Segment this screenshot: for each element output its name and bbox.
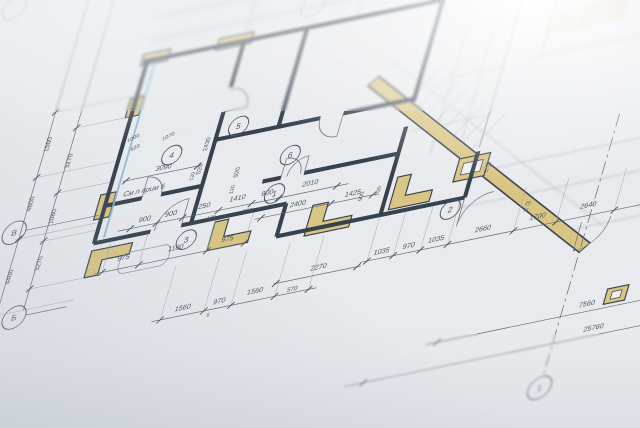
dimension-label: 520 xyxy=(195,163,205,175)
dimension-label: 1070 xyxy=(162,131,175,142)
dimension-label: 900 xyxy=(164,208,179,219)
dimension-label: 6 xyxy=(206,312,211,318)
dimension-label: 2400 xyxy=(289,198,308,210)
dimension-label: 905 xyxy=(242,208,254,216)
dimension-label: 120 xyxy=(205,215,216,223)
dimension-label: 120 xyxy=(229,184,237,194)
dimension-label: 2010 xyxy=(301,177,320,189)
axis-marker-circle xyxy=(0,0,29,22)
room-number: 4 xyxy=(168,150,176,161)
axis-marker-label: В xyxy=(10,227,19,238)
dimension-label: 900 xyxy=(138,213,153,224)
room-number: 5 xyxy=(235,121,243,132)
dimension-label: 4800 xyxy=(26,196,37,212)
axis-marker-label: Б xyxy=(10,312,19,323)
dimension-label: 1560 xyxy=(174,302,193,314)
dimension-label: 4400 xyxy=(4,269,15,285)
dimension-label: 570 xyxy=(286,285,299,294)
faint-top-right-plan xyxy=(526,0,640,59)
axis-centerline xyxy=(544,113,620,374)
dimension-label: 920 xyxy=(232,166,242,178)
dimension-label: 1080 xyxy=(47,208,58,224)
dimension-label: 970 xyxy=(401,240,416,251)
highlighted-columns xyxy=(35,0,640,422)
utility-line-blue xyxy=(104,65,154,238)
dimension-label: 1035 xyxy=(372,245,391,257)
floor-plan-drawing: См п прим 6 9009001250120141090590020102… xyxy=(0,0,640,428)
dimension-label: 3270 xyxy=(34,255,45,271)
dimension-label: 7560 xyxy=(578,298,597,310)
dimension-label: 975 xyxy=(116,252,131,263)
dimension-label: 700 xyxy=(375,185,384,196)
dimension-label: 2640 xyxy=(579,199,598,211)
axis-marker-label: 1 xyxy=(536,382,544,393)
dimension-label: 25760 xyxy=(582,321,605,334)
dimension-label: 1035 xyxy=(427,233,446,245)
room-number: 3 xyxy=(183,234,191,245)
dimension-label: 1100 xyxy=(167,242,185,254)
dimension-label: 970 xyxy=(212,295,227,306)
blueprint-photo: См п прим 6 9009001250120141090590020102… xyxy=(0,0,640,428)
room-number: 2 xyxy=(447,204,455,215)
dimension-label: 2270 xyxy=(309,261,328,273)
dimension-label: 2660 xyxy=(474,223,493,235)
dimension-label: 1560 xyxy=(246,285,265,297)
room-circles-layer: 123456 xyxy=(125,63,503,286)
note-label: См п прим 6 xyxy=(122,181,167,198)
dimension-label: 1560 xyxy=(43,136,54,152)
dimension-label: 3270 xyxy=(64,153,75,169)
